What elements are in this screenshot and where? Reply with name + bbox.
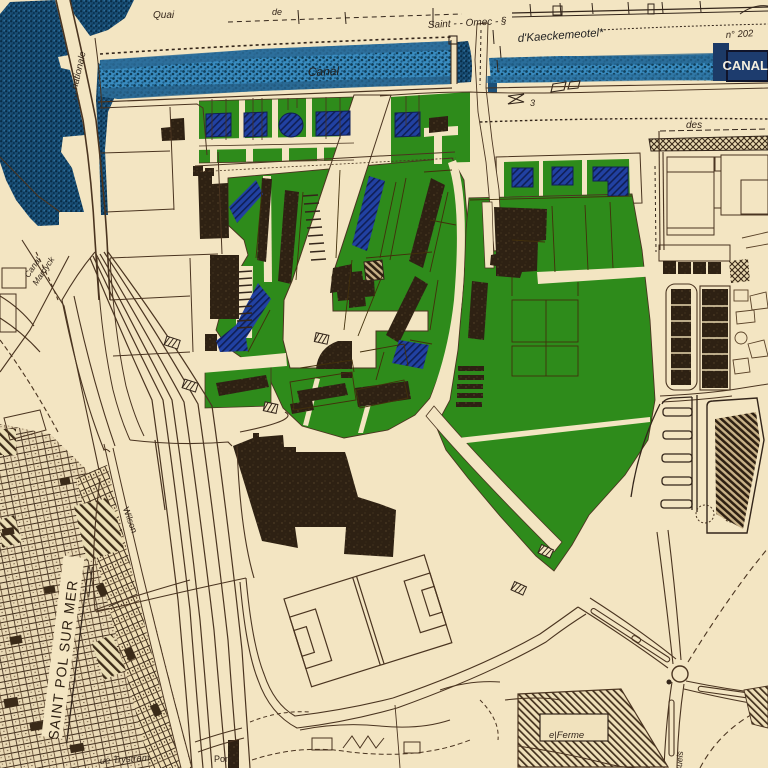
svg-text:e|Ferme: e|Ferme	[549, 730, 584, 741]
svg-text:des: des	[686, 120, 702, 131]
svg-text:Quai: Quai	[153, 10, 175, 21]
svg-text:suels: suels	[674, 750, 685, 768]
svg-text:de: de	[272, 7, 282, 17]
svg-text:CANAL: CANAL	[723, 58, 768, 73]
svg-text:3: 3	[530, 98, 535, 108]
svg-text:Pont: Pont	[214, 754, 233, 764]
svg-text:n° 202: n° 202	[725, 28, 754, 41]
svg-text:Canal: Canal	[308, 64, 340, 79]
